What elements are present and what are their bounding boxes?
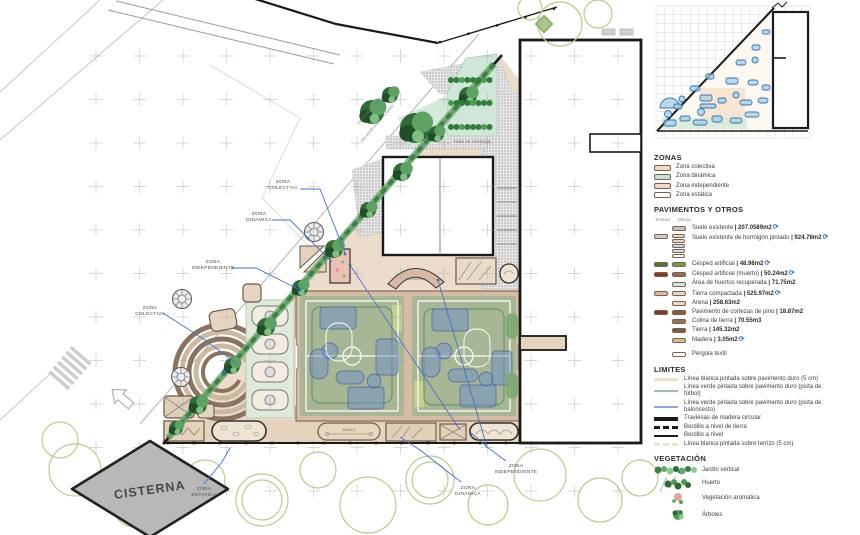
label-zona-independiente-bottom: ZONA — [509, 463, 524, 469]
label-banco: BANCO — [343, 428, 356, 432]
label-zona-dinamica-top: ZONA — [252, 211, 267, 217]
wall-stub — [520, 336, 566, 350]
label-rocodromo: ROCODROMO — [405, 277, 427, 281]
legend-column-headers: TexturaDibujo — [655, 217, 856, 223]
inset-building — [773, 12, 808, 128]
crosswalk-hatch — [48, 346, 91, 390]
legend-title-zonas: ZONAS — [654, 153, 856, 162]
label-zona-dinamica-bottom: ZONA — [461, 485, 476, 491]
legend-row-zona-independiente: Zona independiente — [654, 183, 856, 191]
legend-row-linea-verde-baloncesto: Línea verde pintada sobre pavimento duro… — [654, 400, 856, 414]
svg-text:COLECTIVA: COLECTIVA — [268, 185, 298, 191]
legend-row-suelo-existente: Suelo existente | 207.0589m2⟳ — [654, 224, 856, 233]
street-direction-arrow-icon — [106, 383, 137, 413]
picnic-element — [456, 258, 496, 284]
legend-title-vegetacion: VEGETACIÓN — [654, 454, 856, 463]
legend-row-colina-tierra: Colina de tierra | 70.55m3 — [654, 318, 856, 326]
legend-row-linea-blanca-duro: Línea blanca pintada sobre pavimento dur… — [654, 376, 856, 383]
recycle-icon: ⟳ — [789, 270, 795, 277]
legend-title-pavimentos: PAVIMENTOS Y OTROS — [654, 205, 856, 214]
legend-row-cesped-muerto: Césped artificial (muerto) | 50.24m2⟳ — [654, 270, 856, 279]
legend-row-tierra: Tierra | 145.32m2 — [654, 327, 856, 335]
svg-text:COLECTIVA: COLECTIVA — [135, 311, 165, 317]
aromatica-swatch-icon — [667, 492, 689, 505]
huerto-swatch-icon — [663, 478, 693, 490]
legend-row-zona-dinamica: Zona dinámica — [654, 173, 856, 181]
legend-row-cesped-artificial: Césped artificial | 48.96m2⟳ — [654, 260, 856, 269]
sports-courts — [288, 291, 528, 421]
legend-row-linea-blanca-terrizo: Línea blanca pintada sobre terrizo (5 cm… — [654, 441, 856, 448]
svg-text:DINAMICA: DINAMICA — [455, 491, 481, 497]
svg-text:ESTATICA: ESTATICA — [191, 492, 217, 498]
recycle-icon: ⟳ — [773, 224, 779, 231]
legend-row-arboles: Árboles — [654, 508, 856, 523]
legend-row-vegetacion-aromatica: Vegetación aromática — [654, 492, 856, 505]
legend-row-arena: Arena | 258.63m2 — [654, 300, 856, 308]
equipment-band — [164, 421, 518, 441]
legend-row-traviesas: Traviesas de madera circular — [654, 415, 856, 422]
legend-row-bordillo-tierra: Bordillo a nivel de tierra — [654, 424, 856, 431]
legend-row-bordillo-nivel: Bordillo a nivel — [654, 432, 856, 439]
recycle-icon: ⟳ — [822, 234, 828, 241]
legend-row-madera: Madera | 3.05m2⟳ — [654, 336, 856, 345]
recycle-icon: ⟳ — [764, 260, 770, 267]
label-zona-huertos: ZONA DE HUERTOS — [454, 140, 491, 144]
inset-key-plan — [656, 2, 810, 138]
label-zona-colectiva-top: ZONA — [276, 179, 291, 185]
legend-row-tierra-compactada: Tierra compactada | 525.97m2⟳ — [654, 290, 856, 299]
jardin-vertical-swatch-icon — [654, 465, 698, 475]
svg-text:INDEPENDIENTE: INDEPENDIENTE — [192, 265, 235, 271]
swings — [386, 423, 436, 441]
label-zona-independiente-top: ZONA — [206, 259, 221, 265]
label-zona-estatica: ZONA — [197, 486, 212, 492]
main-building — [520, 29, 641, 443]
svg-text:INDEPENDIENTE: INDEPENDIENTE — [495, 469, 538, 475]
label-zona-colectiva-left: ZONA — [143, 305, 158, 311]
svg-text:DINAMICA: DINAMICA — [246, 217, 272, 223]
legend-row-zona-estatica: Zona estática — [654, 192, 856, 200]
arboles-swatch-icon — [669, 508, 687, 523]
legend-title-limites: LIMITES — [654, 365, 856, 374]
legend-row-cortezas-pino: Pavimento de cortezas de pino | 18.87m2 — [654, 309, 856, 317]
legend-row-huerto: Huerto — [654, 478, 856, 490]
legend-row-hormigon-pintado: Suelo existente de hormigón pintado | 92… — [654, 234, 856, 258]
legend-row-zona-colectiva: Zona colectiva — [654, 164, 856, 172]
recycle-icon: ⟳ — [739, 336, 745, 343]
site-plan-canvas: CISTERNA ZONA COLECTIVA ZONA DINAMICA ZO… — [0, 0, 860, 535]
legend-row-linea-verde-futbol: Línea verde pintada sobre pavimento duro… — [654, 384, 856, 398]
recycle-icon: ⟳ — [775, 290, 781, 297]
pebble-garden — [212, 421, 266, 441]
legend-panel: ZONAS Zona colectiva Zona dinámica Zona … — [654, 153, 856, 525]
legend-row-pergola-textil: Pérgola textil — [654, 351, 856, 359]
legend-row-huertos-recuperada: Área de huertos recuperada | 71.75m2 — [654, 280, 856, 288]
legend-row-jardin-vertical: Jardín vertical — [654, 465, 856, 475]
